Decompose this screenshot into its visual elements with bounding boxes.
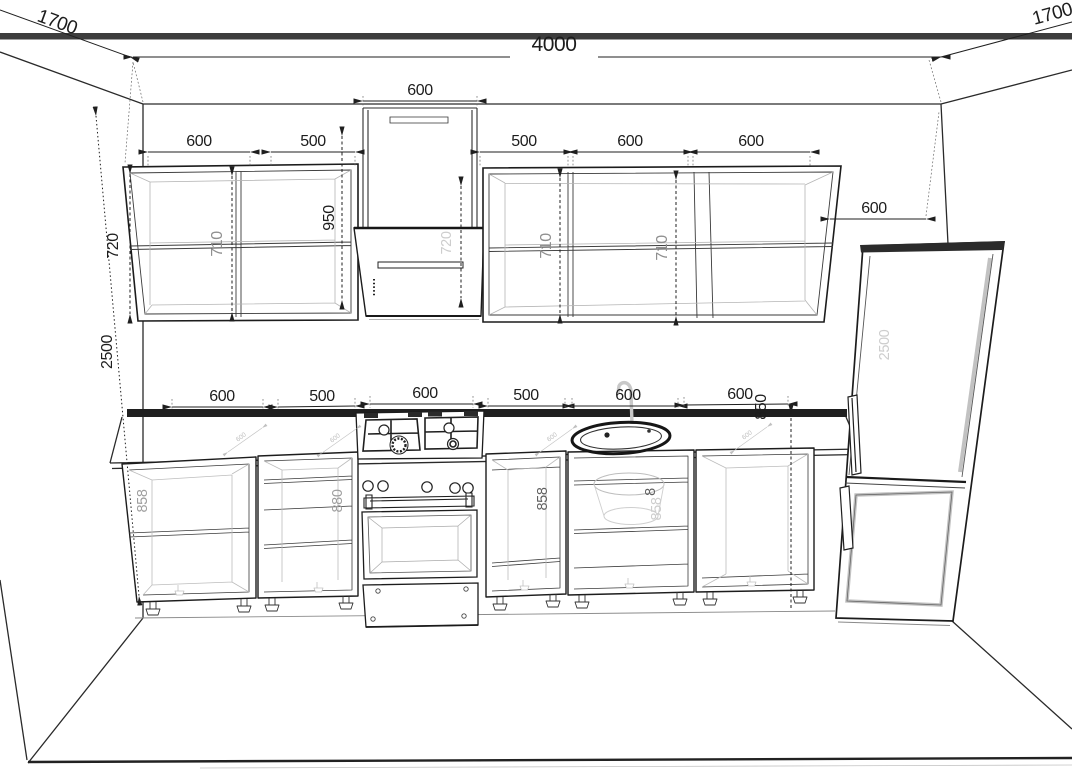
drawing-canvas: 1700 4000 1700 600 600 500 500 600 600 6… [0, 0, 1072, 771]
label-wall-left-1: 600 [186, 133, 212, 150]
base-cab-sink-outline [568, 450, 694, 595]
drawer-screw-2 [464, 587, 468, 591]
label-counter-depth-3: 600 [546, 431, 559, 443]
label-base-height-3: 858 [535, 487, 551, 510]
label-base-3: 500 [513, 387, 539, 404]
cooker-hood [354, 108, 484, 320]
base-cab-2-outline [258, 452, 358, 598]
gas-stove [356, 411, 484, 627]
sink-drain [604, 432, 609, 437]
label-hood-clearance: 950 [321, 205, 338, 231]
floor-front-edge [28, 758, 1072, 762]
label-base-1: 600 [209, 388, 235, 405]
cooktop-surface [356, 411, 484, 459]
burner-small-left [379, 425, 389, 435]
ghost-depth-dims [228, 427, 767, 453]
label-interior-height-1: 710 [209, 231, 226, 257]
sink-inner [580, 425, 662, 451]
label-worktop-height: 850 [753, 394, 770, 420]
hood-handle-slot [378, 262, 463, 268]
label-fridge-height: 2500 [877, 329, 893, 360]
label-base-stove: 600 [412, 385, 438, 402]
ghost-depth-2 [322, 429, 356, 453]
fridge-body [836, 242, 1004, 621]
drawer-screw-4 [462, 614, 466, 618]
floor-front-edge-light [200, 765, 1072, 768]
dim-line-base-4 [684, 404, 788, 405]
label-interior-height-2: 710 [538, 233, 555, 259]
label-base-height-1: 858 [135, 489, 151, 512]
wall-cabinets-left [123, 164, 358, 321]
ghost-depth-3 [540, 429, 572, 452]
label-fridge-depth: 600 [861, 200, 887, 217]
label-duct-width: 600 [407, 82, 433, 99]
oven-door [362, 510, 477, 579]
label-base-2: 500 [309, 388, 335, 405]
refrigerator [836, 241, 1005, 626]
label-wall-right-1: 500 [511, 133, 537, 150]
label-interior-height-3: 710 [654, 235, 671, 261]
duct-vent-slot [390, 117, 448, 123]
kitchen-elevation-drawing: 1700 4000 1700 600 600 500 500 600 600 6… [0, 0, 1072, 771]
base-cab-4-outline [696, 448, 814, 592]
label-counter-depth-1: 600 [235, 431, 248, 443]
backsplash-band [127, 409, 847, 417]
drawer-screw-3 [371, 617, 375, 621]
dim-line-base-2 [278, 406, 355, 407]
hood-body [354, 228, 484, 316]
stove-knob-5 [463, 483, 473, 493]
burner-medium [448, 439, 459, 450]
stove-knob-4 [450, 483, 460, 493]
base-cab-1-outline [122, 457, 256, 602]
label-wall-carcass-height: 720 [105, 233, 122, 259]
label-wall-right-3: 600 [738, 133, 764, 150]
oven-handle [364, 493, 474, 509]
ghost-depth-1 [228, 428, 262, 452]
label-right-depth: 1700 [1030, 0, 1072, 30]
label-counter-depth-2: 600 [329, 432, 342, 444]
label-room-height: 2500 [99, 335, 116, 369]
label-wall-right-2: 600 [617, 133, 643, 150]
stove-knob-3 [422, 482, 432, 492]
label-counter-depth-4: 600 [741, 429, 754, 441]
base-cab-3-outline [486, 451, 566, 597]
label-base-4: 600 [727, 386, 753, 403]
stove-drawer-panel [363, 583, 478, 627]
burner-small-right [444, 423, 454, 433]
fridge-floor-shadow [838, 622, 950, 626]
label-wall-left-2: 500 [300, 133, 326, 150]
hood-duct [363, 108, 477, 227]
faucet-hole [647, 429, 651, 433]
ghost-depth-4 [735, 427, 767, 450]
stove-knob-2 [378, 481, 388, 491]
label-base-height-sink-partial: 8 [643, 488, 659, 496]
label-room-width: 4000 [531, 33, 576, 56]
stove-knob-1 [363, 481, 373, 491]
label-base-height-sink-ghost: 858 [649, 497, 665, 520]
label-base-sink: 600 [615, 387, 641, 404]
label-hood-height: 720 [439, 231, 455, 254]
label-base-height-2: 880 [330, 489, 346, 512]
drawer-screw-1 [376, 589, 380, 593]
